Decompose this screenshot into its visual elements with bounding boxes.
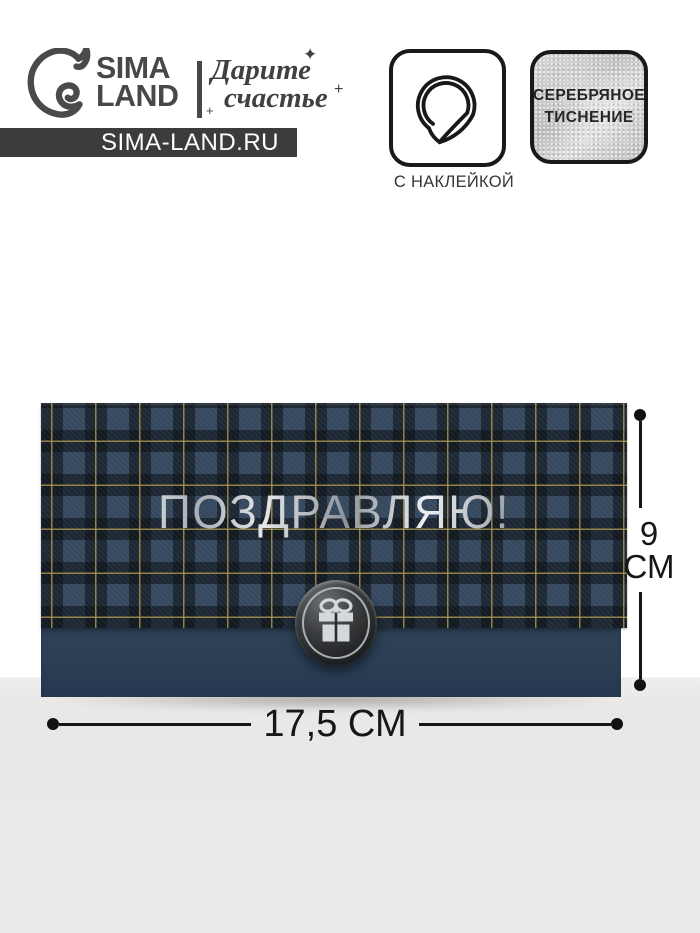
width-dimension: 17,5 СМ (47, 705, 623, 743)
foil-label-line1: СЕРЕБРЯНОЕ (533, 85, 645, 107)
dimension-line (59, 723, 251, 726)
height-dimension-value: 9 (624, 517, 675, 550)
logo-divider (197, 61, 202, 118)
brand-logo: SIMA LAND Дарите счастье ✦ + + SIMA-LAND… (0, 0, 360, 200)
product-photo: SIMA LAND Дарите счастье ✦ + + SIMA-LAND… (0, 0, 700, 933)
gift-envelope: ПОЗДРАВЛЯЮ! (41, 403, 627, 697)
envelope-title: ПОЗДРАВЛЯЮ! (50, 484, 618, 539)
dimension-line (419, 723, 611, 726)
brand-website-bar: SIMA-LAND.RU (0, 128, 297, 157)
dimension-endpoint-dot (634, 409, 646, 421)
sparkle-icon: + (206, 104, 214, 117)
sticker-feature-badge (389, 49, 506, 167)
gift-box-icon (312, 596, 360, 646)
wax-seal (295, 580, 377, 666)
height-dimension-label: 9 СМ (624, 517, 675, 583)
dolphin-logo-icon (24, 48, 94, 120)
sparkle-icon: + (334, 82, 343, 98)
sticker-feature-label: С НАКЛЕЙКОЙ (374, 173, 534, 192)
brand-name-line2: LAND (96, 82, 178, 110)
brand-website: SIMA-LAND.RU (101, 129, 279, 157)
dimension-line (639, 592, 642, 679)
dimension-endpoint-dot (634, 679, 646, 691)
brand-name: SIMA LAND (96, 54, 178, 110)
dimension-line (639, 421, 642, 508)
height-dimension-unit: СМ (624, 550, 675, 583)
height-dimension: 9 СМ (634, 409, 646, 691)
width-dimension-label: 17,5 СМ (263, 705, 406, 743)
sparkle-icon: ✦ (303, 46, 317, 63)
dimension-endpoint-dot (47, 718, 59, 730)
silver-foil-badge: СЕРЕБРЯНОЕ ТИСНЕНИЕ (530, 50, 648, 164)
dimension-endpoint-dot (611, 718, 623, 730)
peeling-sticker-icon (408, 66, 488, 150)
foil-label-line2: ТИСНЕНИЕ (544, 107, 633, 129)
